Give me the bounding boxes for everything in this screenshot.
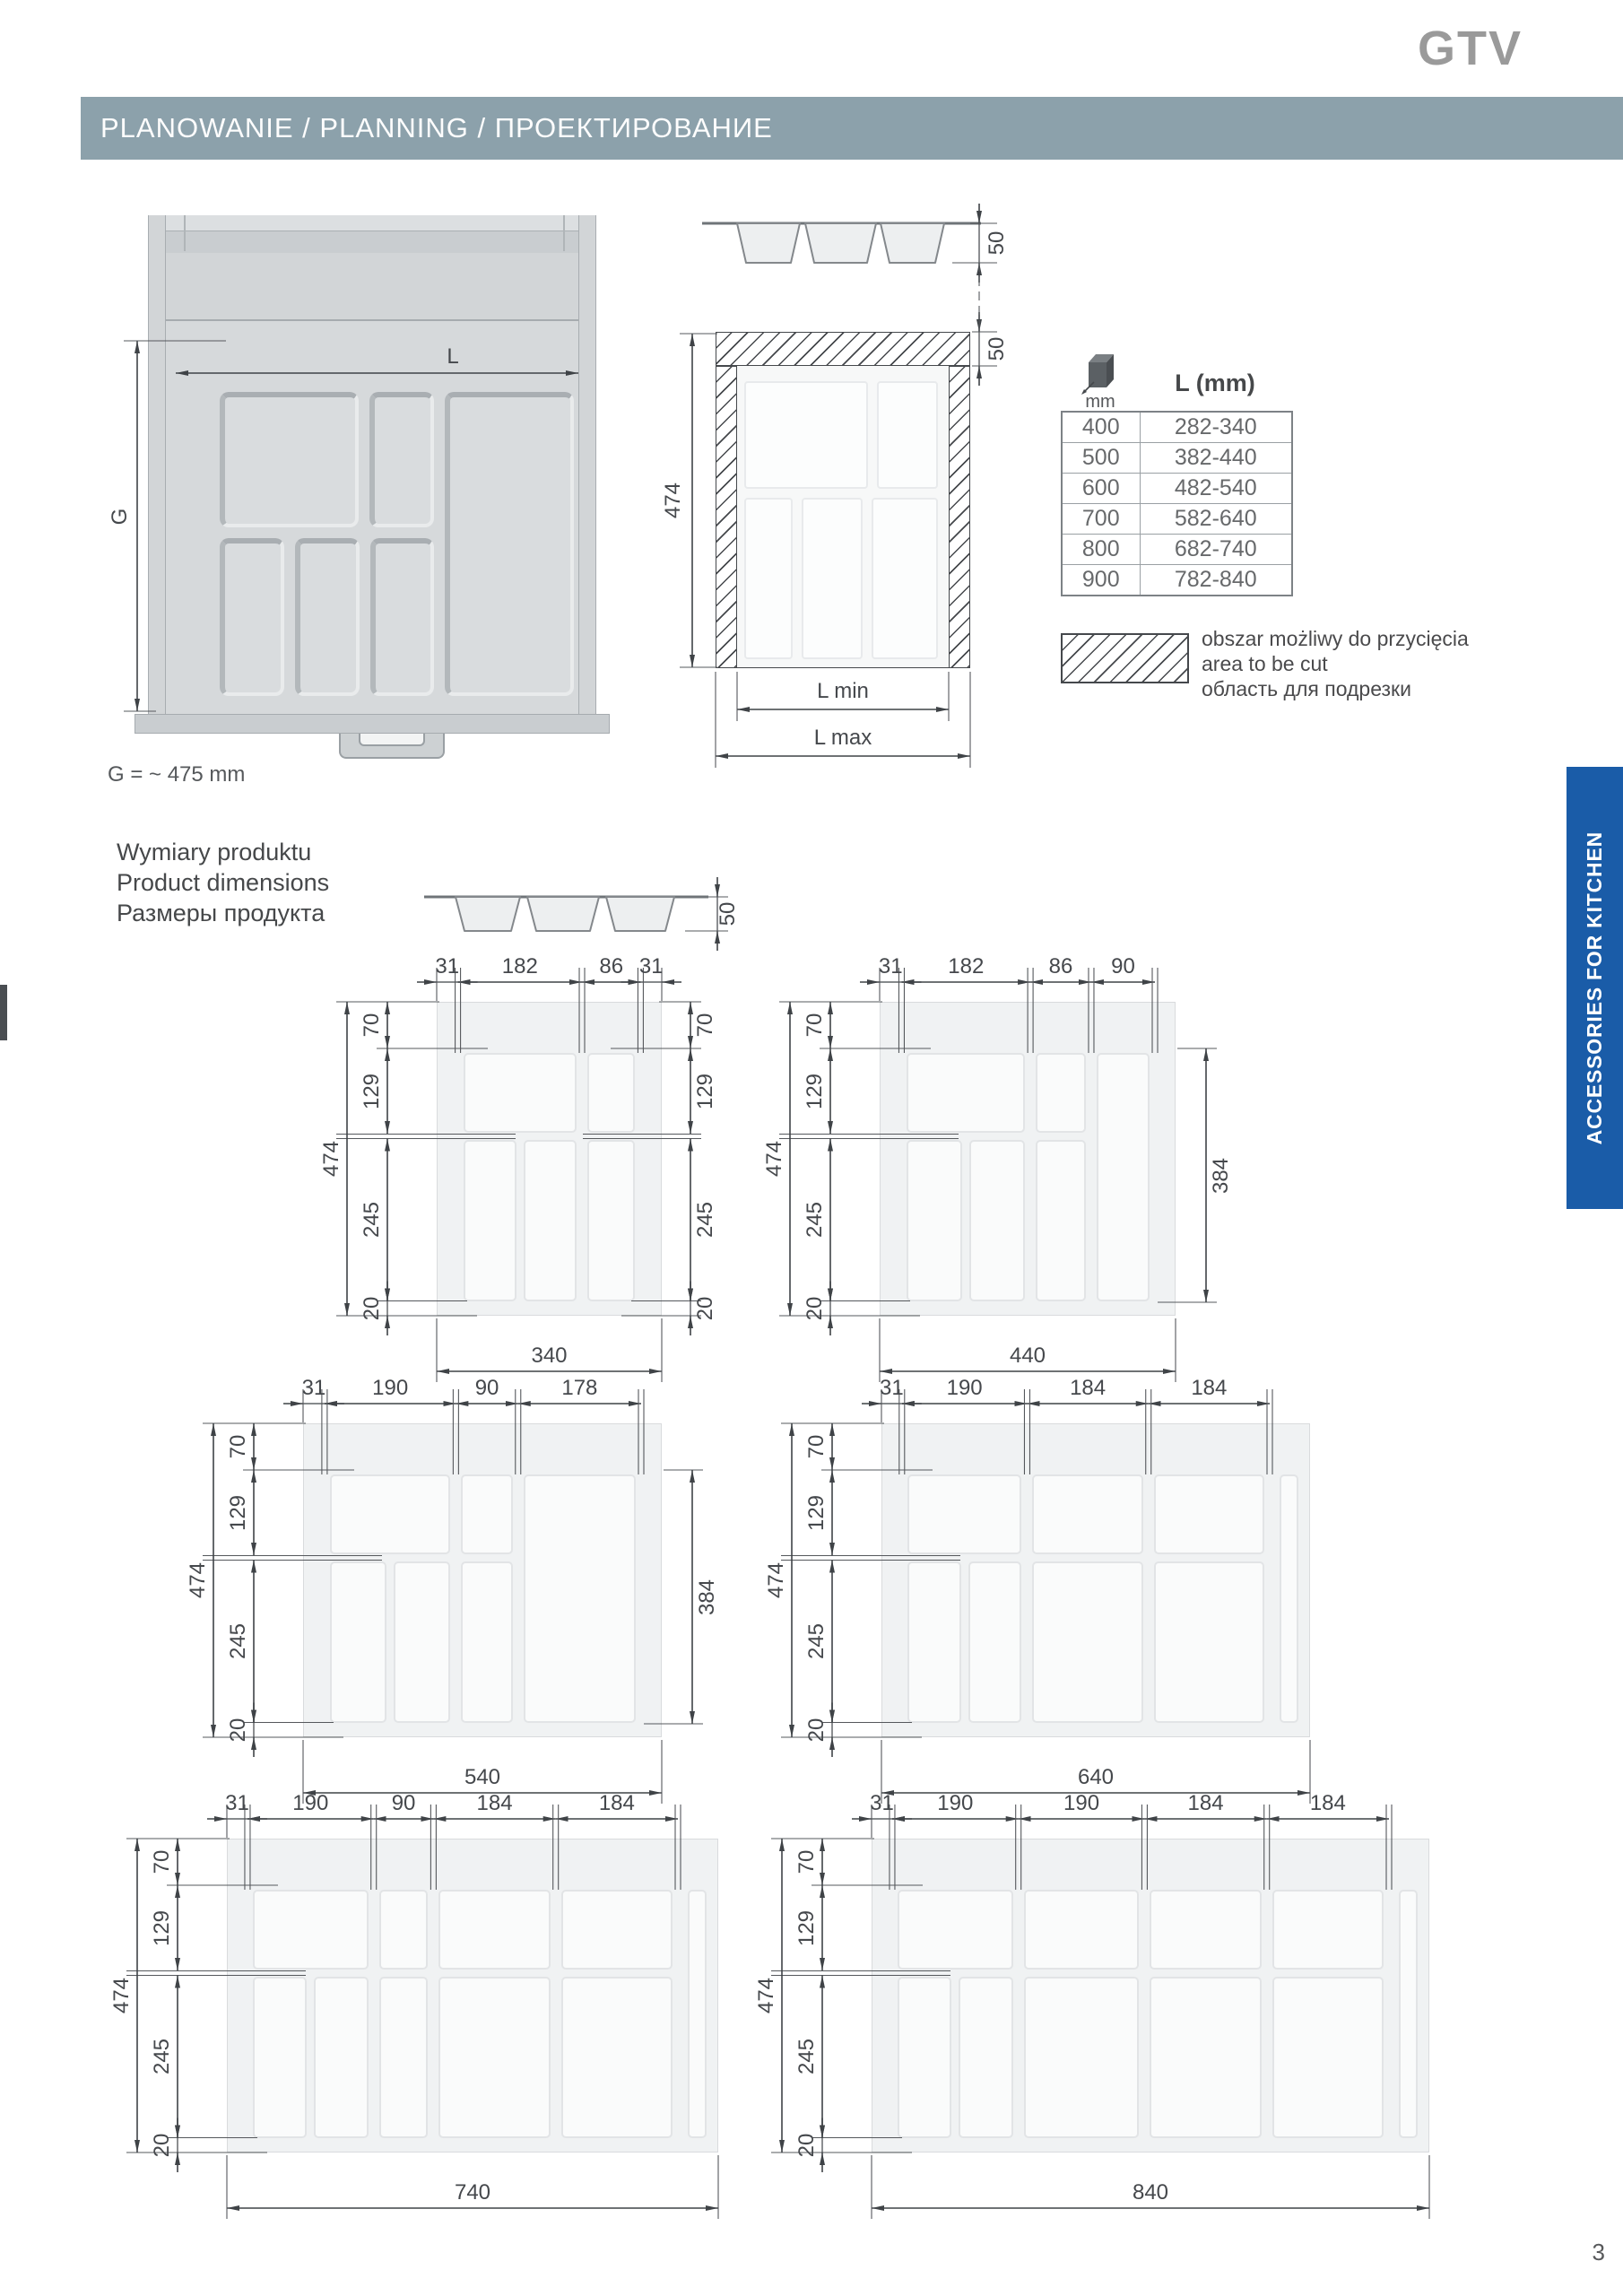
drawer-handle-cutout xyxy=(359,734,425,746)
table-row: 800682-740 xyxy=(1062,535,1292,565)
drawer-depth-note: G = ~ 475 mm xyxy=(108,762,245,787)
tray-compartment xyxy=(464,1140,516,1301)
dimension-label: 182 xyxy=(948,956,984,978)
tray-compartment xyxy=(587,1140,635,1301)
title-line-en: Product dimensions xyxy=(117,867,329,898)
table-cell: 500 xyxy=(1062,443,1140,474)
dimension-label: 184 xyxy=(477,1793,513,1814)
product-dimensions-title: Wymiary produktu Product dimensions Разм… xyxy=(117,837,329,928)
dimension-label: 31 xyxy=(880,1378,904,1399)
tray-compartment xyxy=(220,392,359,527)
table-cell: 382-440 xyxy=(1140,443,1292,474)
table-cell: 582-640 xyxy=(1140,504,1292,535)
tray-compartment xyxy=(1024,1977,1140,2138)
tray-compartment xyxy=(872,498,938,659)
tray-compartment xyxy=(744,381,868,489)
dimension-label: 740 xyxy=(455,2182,490,2204)
tray-compartment xyxy=(330,1561,386,1723)
tray-compartment xyxy=(464,1053,577,1133)
table-cell: 482-540 xyxy=(1140,474,1292,504)
dimension-label: 70 xyxy=(695,1013,716,1038)
dimension-label: 90 xyxy=(1111,956,1135,978)
dimension-label: 129 xyxy=(796,1909,818,1945)
tray-compartment xyxy=(461,1474,512,1554)
dimension-label: 178 xyxy=(561,1378,597,1399)
cabinet-width-table: 400282-340500382-440600482-540700582-640… xyxy=(1061,411,1293,596)
header-bar: PLANOWANIE / PLANNING / ПРОЕКТИРОВАНИЕ xyxy=(81,97,1623,160)
drawer-back-top xyxy=(166,215,578,231)
dimension-label: 182 xyxy=(502,956,538,978)
dimension-label: 50 xyxy=(986,231,1008,256)
dimension-label: 474 xyxy=(764,1141,785,1177)
table-cell: 900 xyxy=(1062,565,1140,596)
table-cell: 782-840 xyxy=(1140,565,1292,596)
tray-compartment xyxy=(438,1890,550,1970)
dimension-label: 184 xyxy=(599,1793,635,1814)
dimension-label: 31 xyxy=(639,956,664,978)
hatch-legend-swatch xyxy=(1061,633,1189,683)
drawer-back-joint xyxy=(563,215,565,251)
tray-compartment xyxy=(561,1890,673,1970)
dimension-label: L max xyxy=(814,727,872,749)
tray-compartment xyxy=(314,1977,368,2138)
dimension-label: 129 xyxy=(804,1073,826,1109)
title-line-pl: Wymiary produktu xyxy=(117,837,329,867)
dimension-label: 190 xyxy=(1063,1793,1099,1814)
catalog-page: GTV PLANOWANIE / PLANNING / ПРОЕКТИРОВАН… xyxy=(0,0,1623,2296)
dimension-label: 129 xyxy=(806,1494,828,1530)
tray-compartment xyxy=(907,1140,962,1301)
tray-compartment xyxy=(330,1474,450,1554)
drawer-back-joint xyxy=(184,215,186,251)
dimension-label: 245 xyxy=(228,1623,249,1659)
table-cell: 800 xyxy=(1062,535,1140,565)
dimension-label: 31 xyxy=(879,956,903,978)
table-cell: 400 xyxy=(1062,412,1140,443)
dimension-label: 70 xyxy=(806,1435,828,1459)
dimension-label: 184 xyxy=(1188,1793,1224,1814)
tray-compartment xyxy=(295,538,360,696)
tray-compartment xyxy=(587,1053,635,1133)
table-cell: 700 xyxy=(1062,504,1140,535)
table-row: 600482-540 xyxy=(1062,474,1292,504)
tray-compartment xyxy=(379,1977,429,2138)
legend-line-en: area to be cut xyxy=(1202,651,1469,676)
dimension-label: 31 xyxy=(870,1793,894,1814)
tray-compartment xyxy=(1036,1140,1086,1301)
cut-area-right-band xyxy=(949,366,970,668)
tray-compartment xyxy=(370,538,434,696)
dimension-label: 70 xyxy=(804,1013,826,1038)
dimension-label: 129 xyxy=(152,1909,173,1945)
dimension-label: 70 xyxy=(796,1850,818,1874)
dimension-label: 474 xyxy=(663,483,684,518)
dimension-label: 20 xyxy=(228,1718,249,1742)
tray-compartment xyxy=(253,1890,369,1970)
tray-compartment xyxy=(898,1977,951,2138)
dimension-label: 474 xyxy=(111,1978,133,2013)
dimension-label: 245 xyxy=(796,2039,818,2074)
dimension-label: 474 xyxy=(766,1562,787,1598)
sidebar-tab-label: ACCESSORIES FOR KITCHEN xyxy=(1583,831,1607,1144)
legend-line-pl: obszar możliwy do przycięcia xyxy=(1202,626,1469,651)
dimension-label: 245 xyxy=(804,1202,826,1238)
tray-compartment xyxy=(907,1474,1022,1554)
tray-compartment xyxy=(1272,1890,1384,1970)
tray-compartment xyxy=(379,1890,429,1970)
dimension-label: 474 xyxy=(187,1562,209,1598)
tray-compartment xyxy=(744,498,793,659)
dimension-label: L min xyxy=(817,681,869,702)
dimension-label: 129 xyxy=(695,1073,716,1109)
dimension-label: 384 xyxy=(697,1578,718,1614)
table-col1-header: mm xyxy=(1080,392,1121,413)
tray-compartment xyxy=(461,1561,512,1723)
dimension-label: 70 xyxy=(228,1435,249,1459)
table-cell: 682-740 xyxy=(1140,535,1292,565)
dimension-label: 20 xyxy=(152,2133,173,2157)
tray-compartment xyxy=(1150,1977,1261,2138)
tray-compartment xyxy=(1032,1474,1142,1554)
dimension-label: 86 xyxy=(599,956,623,978)
table-row: 700582-640 xyxy=(1062,504,1292,535)
dimension-label: 840 xyxy=(1133,2182,1168,2204)
tray-compartment xyxy=(1399,1890,1418,2138)
cut-area-left-band xyxy=(716,366,737,668)
dimension-label: 184 xyxy=(1310,1793,1346,1814)
dimension-label: 31 xyxy=(435,956,459,978)
tray-compartment xyxy=(959,1977,1012,2138)
tray-compartment xyxy=(1036,1053,1086,1133)
dimension-label: 31 xyxy=(225,1793,249,1814)
dimension-label: 245 xyxy=(361,1202,383,1238)
tray-compartment xyxy=(524,1474,636,1723)
dimension-label: 184 xyxy=(1070,1378,1106,1399)
tray-compartment xyxy=(394,1561,450,1723)
dimension-label: 50 xyxy=(717,902,739,926)
drawer-side-rail-left xyxy=(148,215,166,714)
tray-compartment xyxy=(907,1053,1025,1133)
tray-compartment xyxy=(1154,1474,1264,1554)
cabinet-icon xyxy=(1080,350,1121,395)
table-row: 500382-440 xyxy=(1062,443,1292,474)
dimension-label: 245 xyxy=(695,1202,716,1238)
dimension-label: 640 xyxy=(1078,1767,1114,1788)
dimension-label: 440 xyxy=(1010,1345,1046,1367)
dimension-label: 340 xyxy=(531,1345,567,1367)
drawer-side-rail-right xyxy=(578,215,596,714)
dimension-label: 190 xyxy=(292,1793,328,1814)
dimension-label: G xyxy=(109,509,131,526)
table-col2-header: L (mm) xyxy=(1152,370,1278,397)
tray-compartment xyxy=(1272,1977,1384,2138)
tray-compartment xyxy=(907,1561,961,1723)
sidebar-tab-accessories-for-kitchen: ACCESSORIES FOR KITCHEN xyxy=(1567,767,1623,1209)
tray-compartment xyxy=(898,1890,1013,1970)
dimension-label: 190 xyxy=(937,1793,973,1814)
tray-compartment xyxy=(253,1977,307,2138)
drawer-back-mid xyxy=(166,231,578,253)
dimension-label: 129 xyxy=(361,1073,383,1109)
tray-compartment xyxy=(220,538,284,696)
dimension-label: 86 xyxy=(1049,956,1073,978)
tray-compartment xyxy=(524,1140,577,1301)
drawer-back-wide xyxy=(166,253,578,321)
page-number: 3 xyxy=(1524,2239,1605,2266)
tray-compartment xyxy=(445,392,574,696)
tray-compartment xyxy=(969,1140,1025,1301)
cut-area-top-band xyxy=(716,332,970,366)
tray-compartment xyxy=(1150,1890,1261,1970)
dimension-label: 70 xyxy=(361,1013,383,1038)
dimension-label: 50 xyxy=(986,337,1008,361)
dimension-label: 245 xyxy=(152,2039,173,2074)
page-edge-marker xyxy=(0,985,7,1040)
dimension-label: 474 xyxy=(756,1978,777,2013)
dimension-label: 20 xyxy=(796,2133,818,2157)
dimension-label: 31 xyxy=(302,1378,326,1399)
table-row: 400282-340 xyxy=(1062,412,1292,443)
tray-compartment xyxy=(369,392,434,527)
dimension-label: 540 xyxy=(464,1767,500,1788)
tray-compartment xyxy=(1024,1890,1140,1970)
tray-compartment xyxy=(1097,1053,1150,1301)
drawer-front xyxy=(135,714,610,734)
tray-compartment xyxy=(561,1977,673,2138)
dimension-label: 245 xyxy=(806,1623,828,1659)
page-title: PLANOWANIE / PLANNING / ПРОЕКТИРОВАНИЕ xyxy=(81,112,773,144)
table-cell: 282-340 xyxy=(1140,412,1292,443)
dimension-label: 190 xyxy=(372,1378,408,1399)
tray-compartment xyxy=(1032,1561,1142,1723)
dimension-label: 70 xyxy=(152,1850,173,1874)
dimension-label: 20 xyxy=(804,1296,826,1320)
dimension-label: 474 xyxy=(321,1141,343,1177)
dimension-label: 129 xyxy=(228,1494,249,1530)
dimension-label: 20 xyxy=(361,1296,383,1320)
dimension-label: 190 xyxy=(947,1378,983,1399)
dimension-label: 20 xyxy=(695,1296,716,1320)
table-cell: 600 xyxy=(1062,474,1140,504)
tray-compartment xyxy=(877,381,938,489)
table-row: 900782-840 xyxy=(1062,565,1292,596)
tray-compartment xyxy=(438,1977,550,2138)
dimension-label: 90 xyxy=(392,1793,416,1814)
section-tray xyxy=(737,366,949,668)
title-line-ru: Размеры продукта xyxy=(117,898,329,928)
legend-line-ru: область для подрезки xyxy=(1202,676,1469,701)
gtv-logo: GTV xyxy=(1388,27,1523,72)
dimension-label: 384 xyxy=(1211,1157,1232,1193)
dimension-label: 184 xyxy=(1191,1378,1227,1399)
tray-compartment xyxy=(688,1890,707,2138)
tray-compartment xyxy=(1280,1474,1298,1723)
tray-compartment xyxy=(802,498,863,659)
tray-compartment xyxy=(1154,1561,1264,1723)
tray-compartment xyxy=(968,1561,1022,1723)
dimension-label: 90 xyxy=(475,1378,499,1399)
dimension-label: 20 xyxy=(806,1718,828,1742)
